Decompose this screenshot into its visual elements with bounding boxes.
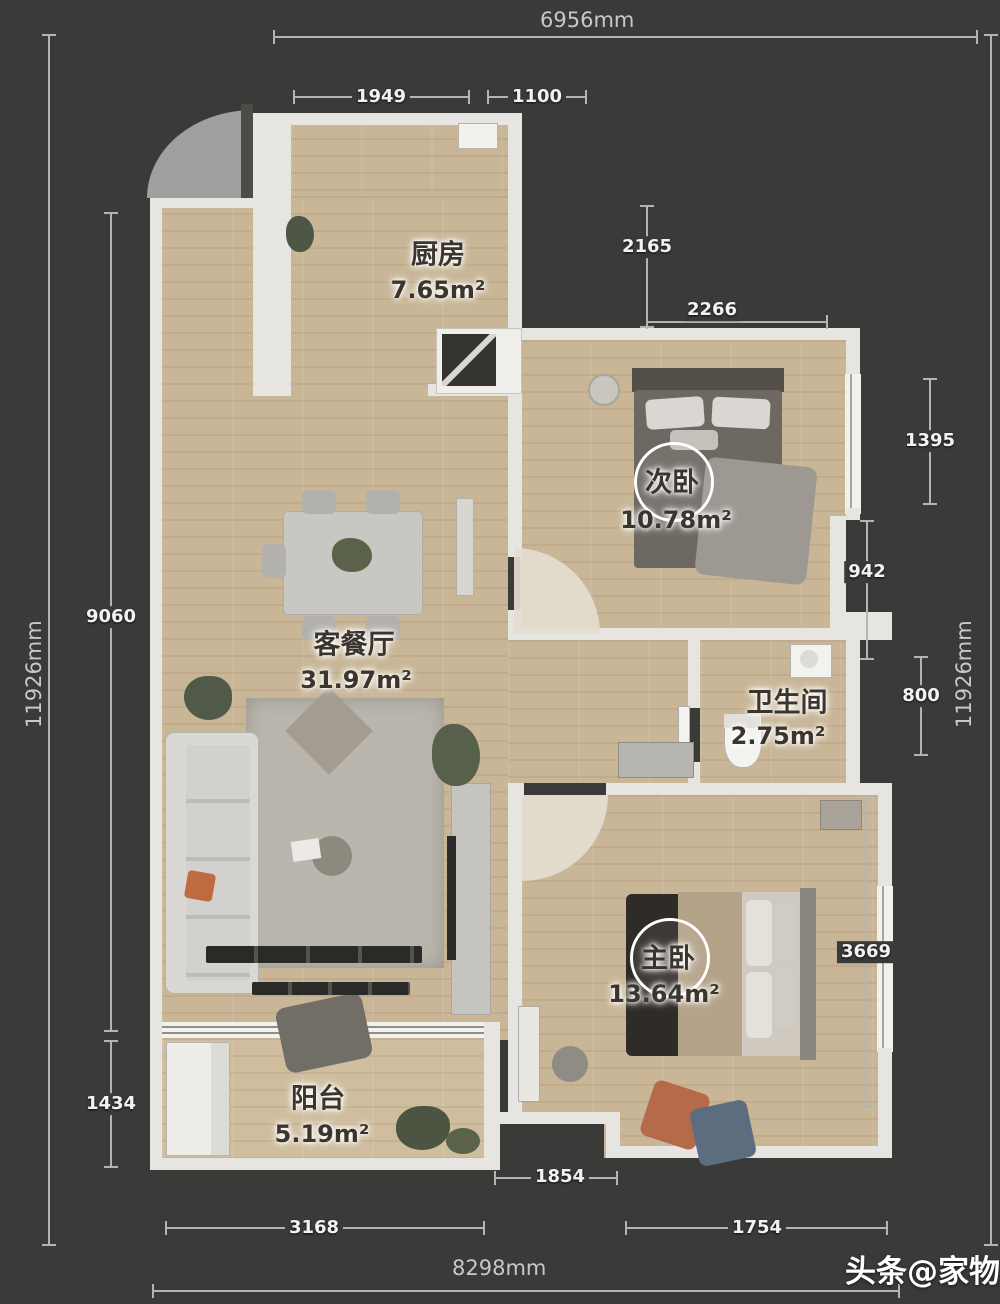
wall [508,783,524,795]
dining-chair [302,490,336,514]
bathroom-label: 卫生间 [747,681,828,720]
dim-label-1854: 1854 [531,1166,589,1188]
wall [846,640,860,795]
sink-basin [800,650,818,668]
pillow [645,396,705,430]
dim-label-3168: 3168 [285,1217,343,1239]
balcony-cabinet [166,1042,230,1156]
pillow [774,970,796,1028]
dim-label-3669: 3669 [837,941,895,963]
pillow [711,397,770,430]
dim-left-total: 11926mm [22,598,46,728]
nightstand [820,800,862,830]
stove-icon [442,334,496,386]
kitchen-label: 厨房 [411,233,465,272]
master-bedroom-window [877,886,893,1052]
dim-label-1100: 1100 [508,86,566,108]
dim-bottom-total: 8298mm [452,1256,546,1280]
wall [688,640,700,708]
dim-label-1395: 1395 [901,430,959,452]
dim-label-9060: 9060 [82,606,140,628]
wall [606,1112,620,1158]
watermark: 头条@家物 [845,1246,1000,1291]
dim-line [990,34,992,1246]
living-dining-label: 客餐厅 [314,623,395,662]
plant [184,676,232,720]
media-bar [252,982,410,995]
dim-label-1434: 1434 [82,1093,140,1115]
entry-door-leaf [241,104,253,198]
kitchen-window-box [458,123,498,149]
accent-pillow [184,870,216,902]
plant [446,1128,480,1154]
dining-chair [262,544,286,578]
dim-label-1754: 1754 [728,1217,786,1239]
plant [332,538,372,572]
tv-console [452,784,490,1014]
wall [150,196,162,1170]
media-bar [206,946,422,963]
master-bedroom-area: 13.64m² [608,980,719,1008]
second-bedroom-area: 10.78m² [620,506,731,534]
hall-vanity [618,742,694,778]
bed-headboard [800,888,816,1060]
dim-right-total: 11926mm [952,598,976,728]
kitchen-area: 7.65m² [391,276,486,304]
balcony-label: 阳台 [291,1077,345,1116]
second-bedroom-label: 次卧 [645,461,699,500]
tv-screen [447,836,456,960]
wall [606,783,892,795]
dim-line [866,520,868,660]
bed-headboard [632,368,784,392]
wall [846,328,860,380]
dim-label-2266: 2266 [683,299,741,321]
second-bedroom-window [845,374,861,514]
dim-label-2165: 2165 [618,236,676,258]
wall [496,1112,620,1124]
pillow [746,900,772,966]
table-cloth [291,838,322,862]
floor-plan: 厨房 7.65m² 次卧 10.78m² 客餐厅 31.97m² 卫生间 2.7… [0,0,1000,1304]
dim-label-942: 942 [844,561,890,583]
wall [150,1158,500,1170]
pillow [746,972,772,1038]
plant [286,216,314,252]
bathroom-area: 2.75m² [731,722,826,750]
ceiling-lamp-icon [588,374,620,406]
sideboard [456,498,474,596]
wall [878,1048,892,1158]
wall [484,1022,500,1170]
balcony-area: 5.19m² [275,1120,370,1148]
dim-line [152,1290,900,1292]
dim-line [646,321,828,323]
living-dining-area: 31.97m² [300,666,411,694]
dim-line [646,205,648,328]
master-bedroom-label: 主卧 [641,937,695,976]
dim-line [48,34,50,1246]
dining-chair [366,490,400,514]
dim-label-1949: 1949 [352,86,410,108]
wall [508,328,860,340]
wall [253,113,291,396]
entry-door-arc [147,110,253,198]
dim-label-800: 800 [898,685,944,707]
dim-top-total: 6956mm [540,8,634,32]
stool [552,1046,588,1082]
dim-line [273,36,978,38]
wardrobe [518,1006,540,1102]
pillow [774,904,796,962]
floor-cushion [689,1099,758,1168]
wall [878,783,892,891]
plant [432,724,480,786]
